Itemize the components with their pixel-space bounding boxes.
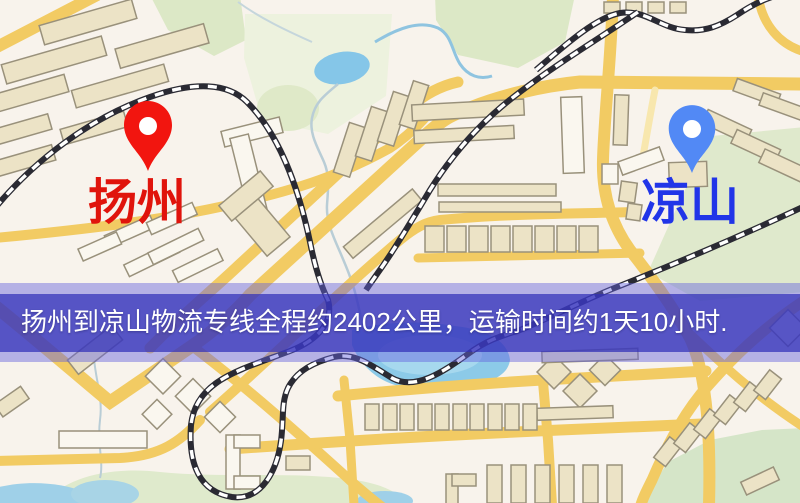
- map-canvas[interactable]: 扬州 凉山: [0, 0, 800, 503]
- city-label-liangshan: 凉山: [641, 175, 739, 230]
- map-screenshot: 扬州 凉山 扬州到凉山物流专线全程约2402公里，运输时间约1天10小时.: [0, 0, 800, 503]
- pin-hole: [683, 120, 701, 138]
- city-label-yangzhou: 扬州: [88, 175, 186, 230]
- banner-text: 扬州到凉山物流专线全程约2402公里，运输时间约1天10小时.: [21, 302, 781, 339]
- pin-hole: [139, 117, 157, 135]
